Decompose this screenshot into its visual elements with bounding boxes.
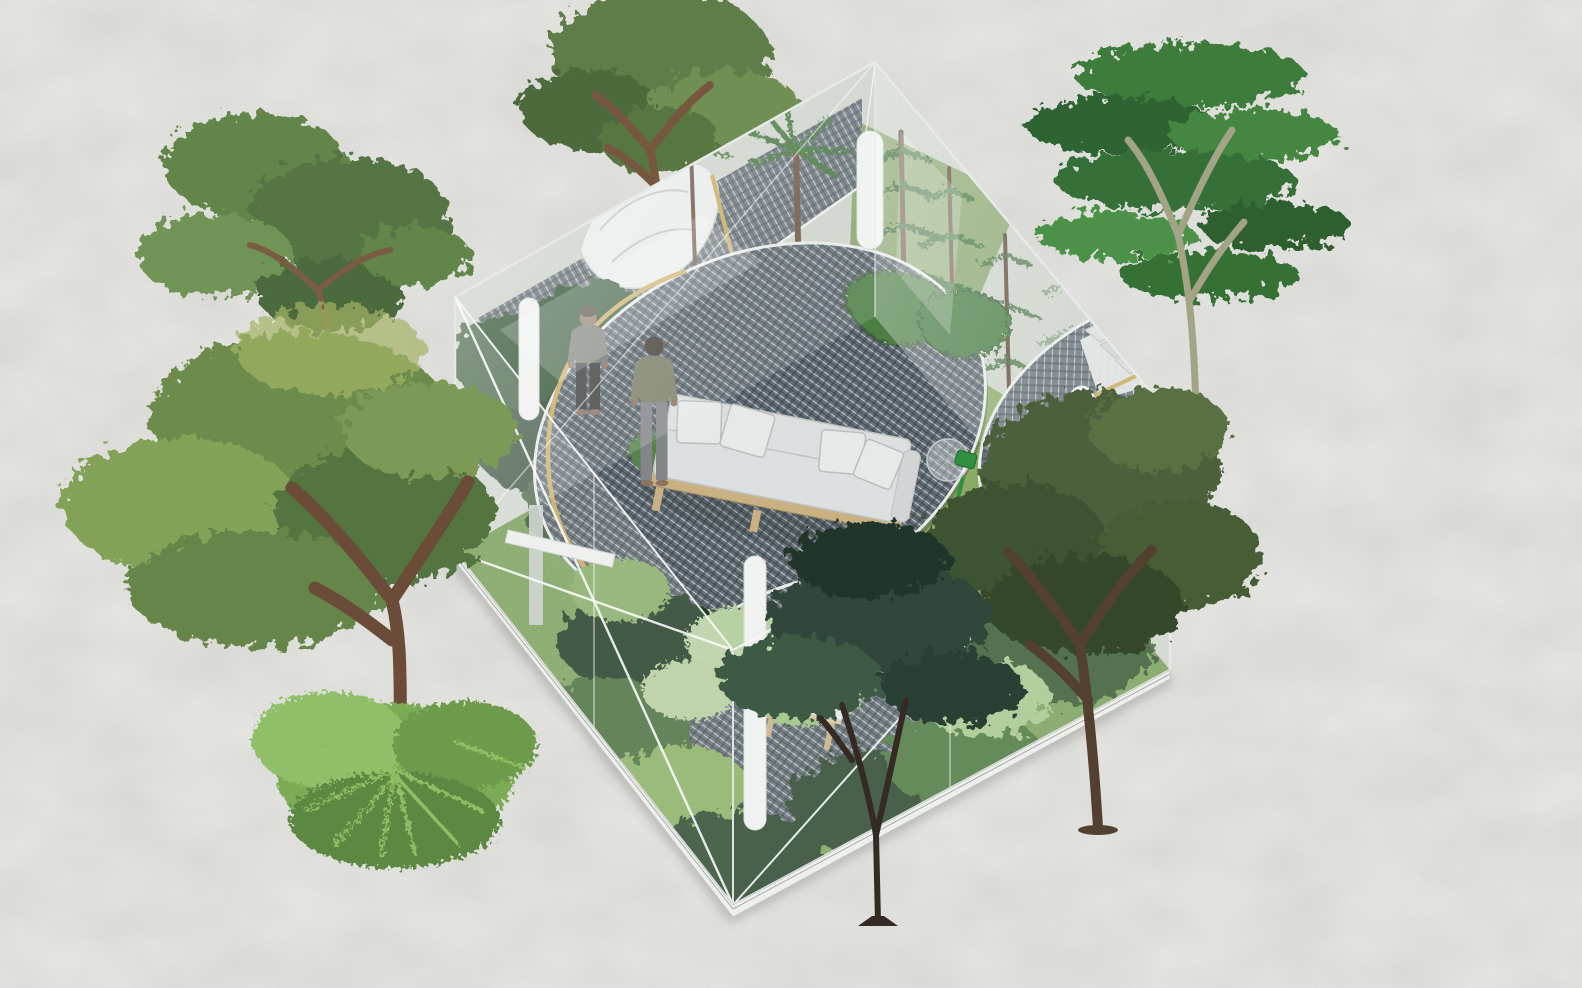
collage-canvas — [0, 0, 1582, 988]
architectural-collage — [0, 0, 1582, 988]
tree-right-rootflare — [1078, 825, 1118, 835]
